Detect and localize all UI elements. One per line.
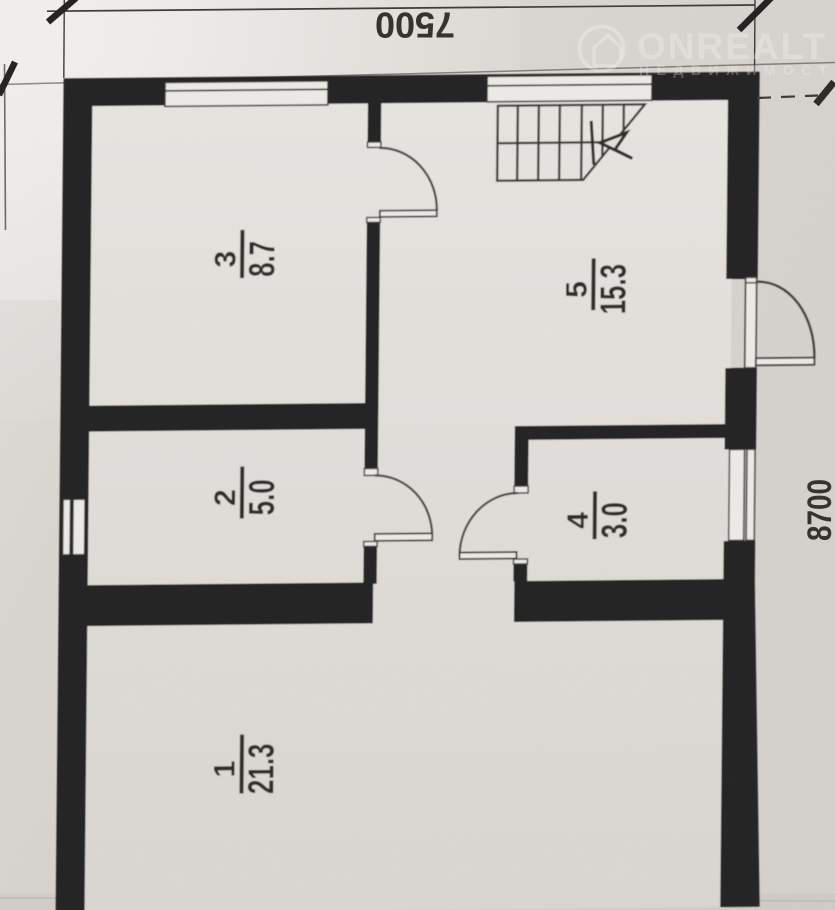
svg-text:ONREALT: ONREALT xyxy=(637,26,827,67)
svg-text:НЕДВИЖИМОСТЬ: НЕДВИЖИМОСТЬ xyxy=(639,62,835,78)
